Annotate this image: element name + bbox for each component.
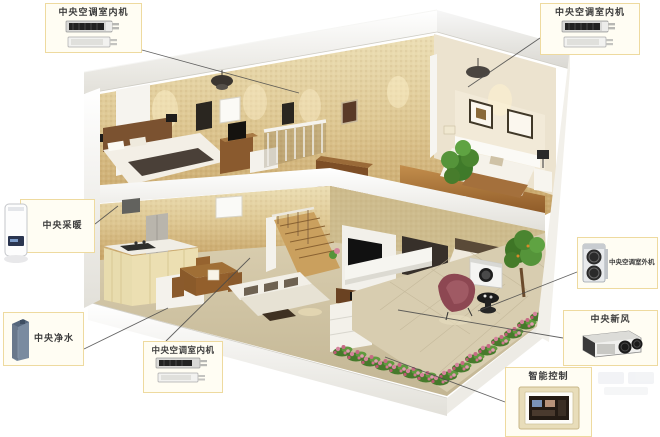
callout-label: 中央空调室内机: [555, 8, 625, 19]
wall-art: [342, 100, 357, 124]
callout-central-water-purifier: 中央净水: [3, 312, 84, 366]
watermark: [598, 372, 654, 395]
callout-smart-control: 智能控制: [505, 367, 592, 437]
smart-home-systems-infographic: 中央空调室内机 中央空调室内机 中央采暖: [0, 0, 660, 437]
callout-label: 中央采暖: [42, 221, 82, 232]
callout-central-heating: 中央采暖: [20, 199, 95, 253]
control-panel-image: [517, 385, 581, 431]
callout-central-ac-indoor-top-right: 中央空调室内机: [540, 3, 640, 55]
boiler-image: [3, 202, 30, 264]
range-hood: [122, 198, 140, 214]
table-lamp: [208, 270, 219, 280]
window-dark: [196, 101, 212, 131]
callout-label: 中央空调室外机: [609, 259, 655, 267]
water-purifier-image: [9, 316, 32, 362]
fresh-air-unit-image: [577, 328, 645, 358]
callout-label: 智能控制: [528, 372, 568, 383]
indoor-ac-units-image: [63, 20, 125, 50]
indoor-ac-units-image: [559, 20, 621, 50]
callout-label: 中央新风: [590, 315, 630, 326]
callout-label: 中央空调室内机: [151, 346, 214, 356]
callout-central-ac-indoor-bottom: 中央空调室内机: [143, 341, 223, 393]
callout-central-fresh-air: 中央新风: [563, 310, 658, 366]
indoor-ac-units-image: [153, 357, 213, 385]
outdoor-ac-unit-image: [581, 241, 609, 285]
framed-picture: [508, 110, 532, 138]
callout-label: 中央空调室内机: [58, 8, 128, 19]
callout-central-ac-outdoor: 中央空调室外机: [577, 237, 658, 289]
callout-label: 中央净水: [34, 334, 74, 345]
callout-central-ac-indoor-top-left: 中央空调室内机: [45, 3, 142, 53]
left-exterior-wall: [84, 88, 100, 308]
